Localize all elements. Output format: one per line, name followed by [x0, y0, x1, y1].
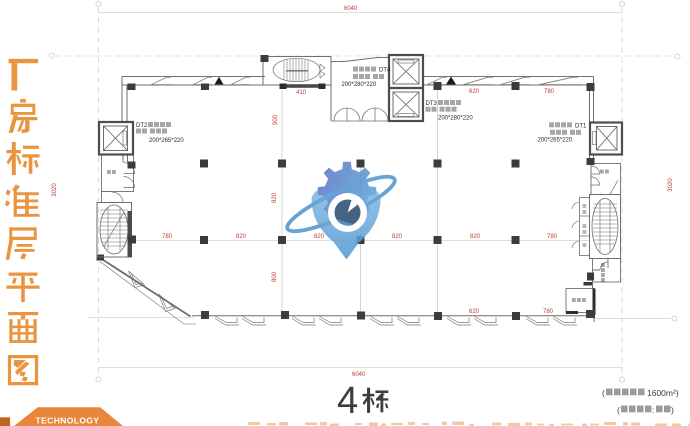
- svg-text:DT2: DT2: [136, 123, 148, 129]
- svg-text:TECHNOLOGY: TECHNOLOGY: [36, 416, 100, 426]
- svg-text::: :: [652, 405, 654, 415]
- svg-text:): ): [671, 405, 674, 415]
- svg-text:(: (: [602, 388, 605, 398]
- svg-text:820: 820: [236, 234, 247, 240]
- svg-text:200*280*220: 200*280*220: [438, 116, 473, 122]
- svg-text:820: 820: [470, 234, 481, 240]
- svg-text:DT1: DT1: [575, 123, 587, 129]
- svg-text:780: 780: [544, 89, 555, 95]
- svg-text:200*265*220: 200*265*220: [538, 138, 573, 144]
- svg-text:6040: 6040: [344, 6, 358, 12]
- svg-text:780: 780: [543, 309, 554, 315]
- svg-text:820: 820: [314, 234, 325, 240]
- svg-text:200*280*220: 200*280*220: [342, 82, 377, 88]
- svg-text:620: 620: [469, 89, 480, 95]
- svg-text:620: 620: [469, 309, 480, 315]
- svg-text:780: 780: [547, 234, 558, 240]
- svg-text:1600m²): 1600m²): [647, 388, 679, 398]
- svg-text:4: 4: [337, 380, 358, 422]
- svg-text:410: 410: [296, 90, 307, 96]
- svg-text:900: 900: [273, 114, 279, 125]
- svg-text:3020: 3020: [52, 183, 58, 197]
- svg-text:DT4: DT4: [379, 68, 391, 74]
- svg-text:DT3: DT3: [426, 101, 438, 107]
- svg-text:800: 800: [272, 271, 278, 282]
- svg-text:6040: 6040: [352, 372, 366, 378]
- svg-text:780: 780: [162, 234, 173, 240]
- svg-text:200*265*220: 200*265*220: [149, 138, 184, 144]
- svg-text:3020: 3020: [668, 178, 674, 192]
- svg-text:820: 820: [392, 234, 403, 240]
- svg-text:(: (: [617, 405, 620, 415]
- svg-text:820: 820: [272, 192, 278, 203]
